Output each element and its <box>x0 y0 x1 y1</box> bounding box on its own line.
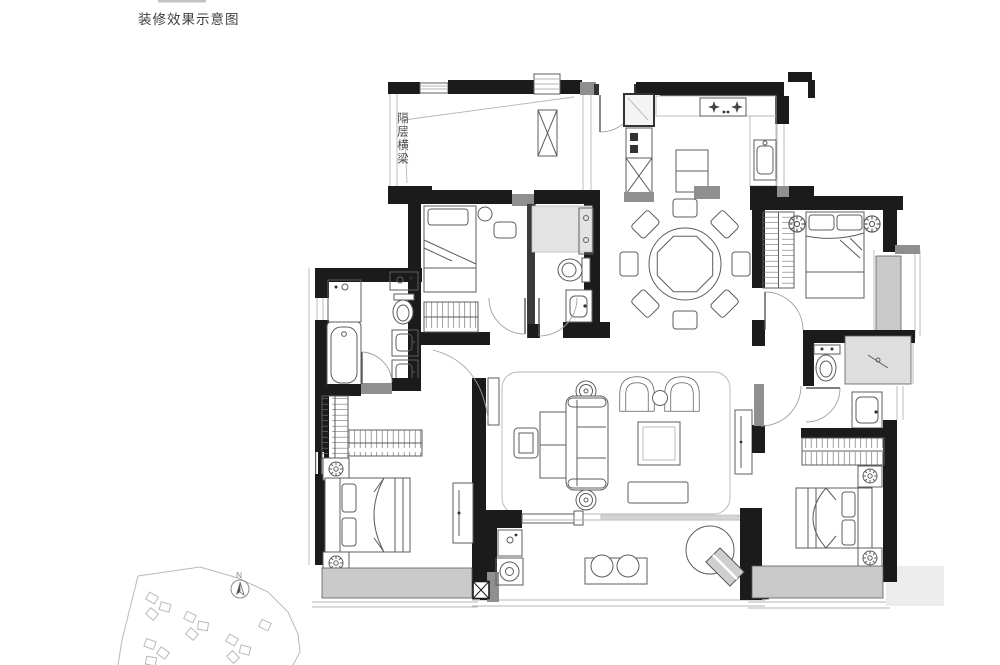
dining-table <box>649 228 721 300</box>
side-table <box>494 222 516 238</box>
entry-cabinet <box>624 128 654 202</box>
bathroom-3 <box>803 330 915 428</box>
duct-shaft <box>538 110 557 156</box>
bay-window-seat <box>322 568 472 598</box>
living-room <box>502 372 752 514</box>
compass-label: N <box>236 570 242 580</box>
fridge <box>624 94 654 126</box>
wardrobe-4 <box>802 438 884 465</box>
bedroom-4 <box>752 420 897 598</box>
sofa <box>566 396 608 490</box>
wardrobe-3 <box>424 302 478 332</box>
floor-lamp <box>576 490 596 510</box>
entry-hall <box>594 82 668 202</box>
bathroom-3-door <box>806 388 840 422</box>
bathtub <box>327 322 361 388</box>
floor-plan-svg: 装修效果示意图 隔层横梁 <box>0 0 1000 665</box>
double-bed-4 <box>796 488 872 548</box>
page-title: 装修效果示意图 <box>138 11 240 27</box>
toilet-3 <box>814 345 840 381</box>
balcony <box>473 508 768 602</box>
bedroom-3-door <box>489 298 525 334</box>
tv-cabinet <box>735 410 752 474</box>
sink-2 <box>566 290 592 322</box>
beam-label: 隔层横梁 <box>396 112 409 166</box>
cropped-edge-artifact <box>158 0 206 3</box>
window-left <box>317 298 323 320</box>
master-bath-door <box>362 352 392 384</box>
corridor-door-leaf <box>754 384 764 426</box>
bay-window-4 <box>752 566 883 598</box>
double-bed-2 <box>806 212 864 298</box>
stool <box>478 207 492 221</box>
window-top <box>420 83 448 93</box>
nightstand <box>323 458 349 480</box>
suite-door-leaf <box>488 378 499 425</box>
shower-area <box>532 206 592 252</box>
single-bed <box>424 206 476 292</box>
vanity-3 <box>852 392 882 428</box>
coffee-table <box>638 422 680 465</box>
kitchen-sink <box>754 140 776 180</box>
armchair <box>665 377 700 412</box>
kitchen-window <box>777 124 784 186</box>
bedroom-3 <box>408 190 535 382</box>
laundry-counter <box>498 530 522 556</box>
kitchen <box>656 72 815 210</box>
master-bed <box>325 478 410 552</box>
bedroom-2-door <box>765 292 803 330</box>
closet-rack-vertical <box>322 396 348 458</box>
toilet-master <box>393 294 414 324</box>
stove <box>700 98 746 116</box>
leisure-table <box>686 526 744 586</box>
shower-3 <box>845 336 911 384</box>
plant-pots <box>585 555 647 584</box>
dresser <box>453 483 473 543</box>
storage-room: 隔层横梁 <box>388 74 596 206</box>
site-plan: N <box>118 567 300 665</box>
closet-rack-horizontal <box>348 430 422 456</box>
side-round-table <box>653 391 668 406</box>
corridor-door-arc <box>761 386 801 426</box>
round-nightstand <box>789 216 805 232</box>
site-buildings <box>144 592 271 665</box>
corridor <box>752 384 801 453</box>
accent-chair <box>514 428 538 458</box>
toilet-2 <box>558 258 590 282</box>
master-bedroom <box>322 458 473 598</box>
sliding-door <box>522 511 742 525</box>
nightstand <box>858 466 882 487</box>
bench <box>628 482 688 503</box>
compass: N <box>231 570 249 598</box>
bay-window-2 <box>874 245 920 336</box>
round-nightstand <box>864 216 880 232</box>
armchair <box>620 377 655 412</box>
flue <box>534 74 560 94</box>
shower <box>328 280 361 322</box>
column-marker <box>473 582 489 599</box>
kitchen-island <box>676 150 708 192</box>
washing-machine <box>496 558 523 585</box>
floor-plan-page: 装修效果示意图 隔层横梁 <box>0 0 1000 665</box>
bedroom-2 <box>750 186 920 336</box>
